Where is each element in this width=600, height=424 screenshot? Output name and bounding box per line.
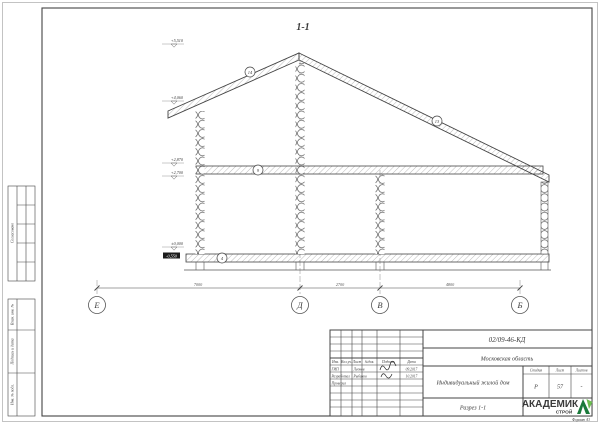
dimension-value: 7000 bbox=[194, 282, 203, 287]
stamp-cell-label: Взам. инв. № bbox=[11, 304, 15, 325]
project-name: Индивидуальный жилой дом bbox=[436, 380, 510, 387]
stamp-cell-label: Подпись и дата bbox=[11, 338, 15, 365]
log-wall-right bbox=[376, 174, 385, 254]
svg-text:14: 14 bbox=[248, 70, 253, 75]
svg-text:+2,870: +2,870 bbox=[171, 157, 184, 163]
tb-header-doc: №док. bbox=[364, 360, 375, 364]
tb-row-role: Разработал bbox=[331, 374, 351, 378]
svg-text:+5,510: +5,510 bbox=[171, 38, 184, 44]
svg-text:±0,000: ±0,000 bbox=[171, 241, 184, 247]
svg-text:Б: Б bbox=[516, 300, 522, 310]
svg-text:+2,700: +2,700 bbox=[171, 170, 184, 176]
format-note: Формат А3 bbox=[572, 418, 590, 422]
sheet-value: 57 bbox=[557, 385, 564, 391]
stage-label: Стадия bbox=[530, 369, 542, 373]
elevation-mark: +2,700 bbox=[162, 170, 184, 179]
axis-bubble-e: Е bbox=[89, 297, 106, 314]
svg-text:13: 13 bbox=[435, 119, 440, 124]
section-title: 1-1 bbox=[296, 22, 309, 33]
roof-left-slope bbox=[168, 53, 299, 118]
detail-marker: 9 bbox=[253, 165, 263, 175]
sheets-label: Листов bbox=[575, 369, 588, 373]
dimension-value: 2700 bbox=[336, 282, 345, 287]
end-post bbox=[541, 182, 548, 254]
detail-markers: 14 13 9 4 bbox=[217, 67, 442, 263]
log-wall-left bbox=[196, 111, 205, 254]
log-wall-middle bbox=[296, 63, 305, 254]
tb-row-name: Рыбаков bbox=[353, 374, 368, 378]
doc-number: 02/09-46-КД bbox=[489, 336, 526, 344]
section-drawing-canvas: Согласовано Взам. инв. № Подпись и дата … bbox=[0, 0, 600, 424]
foundation-lines bbox=[184, 262, 551, 270]
side-stamp-column: Согласовано Взам. инв. № Подпись и дата … bbox=[8, 186, 35, 416]
roof-right-slope bbox=[299, 53, 549, 182]
tb-row-name: Леонов bbox=[353, 367, 365, 371]
tb-row-date: 09.2017 bbox=[406, 367, 418, 371]
region-name: Московская область bbox=[480, 356, 534, 363]
tb-header-list: Лист bbox=[352, 360, 362, 364]
axis-bubble-d: Д bbox=[292, 297, 309, 314]
tb-header-koluch: Кол.уч. bbox=[340, 360, 352, 364]
dimension-value: 4800 bbox=[446, 282, 455, 287]
sheet-label: Лист bbox=[555, 369, 565, 373]
tb-row-role: Проверил bbox=[331, 381, 347, 385]
dimension-line: 7000 2700 4800 bbox=[95, 282, 523, 291]
axis-bubble-b: Б bbox=[512, 297, 529, 314]
floor-beam bbox=[186, 254, 549, 262]
sheets-value: - bbox=[581, 385, 583, 391]
title-block: Изм. Кол.уч. Лист №док. Подпись Дата ГИП… bbox=[330, 330, 593, 416]
svg-text:+4,060: +4,060 bbox=[171, 95, 184, 101]
axis-bubbles: Е Д В Б bbox=[89, 297, 529, 314]
detail-marker: 4 bbox=[217, 253, 227, 263]
elevation-mark: +4,060 bbox=[162, 95, 184, 104]
svg-text:Д: Д bbox=[296, 300, 303, 310]
ceiling-beam bbox=[196, 166, 543, 174]
elevation-mark-negative: -0,550 bbox=[163, 253, 180, 260]
tb-row-role: ГИП bbox=[331, 367, 340, 371]
detail-marker: 14 bbox=[245, 67, 255, 77]
tb-header-date: Дата bbox=[406, 360, 416, 364]
stamp-cell-label: Инв. № подл. bbox=[11, 384, 15, 406]
detail-marker: 13 bbox=[432, 116, 442, 126]
tb-row-date: 10.2017 bbox=[406, 374, 418, 378]
svg-text:Е: Е bbox=[93, 300, 100, 310]
axis-bubble-v: В bbox=[372, 297, 389, 314]
drawing-name: Разрез 1-1 bbox=[459, 406, 486, 412]
elevation-marks: +5,510 +4,060 +2,870 +2,700 ±0,000 -0,55… bbox=[162, 38, 184, 259]
elevation-mark: +2,870 bbox=[162, 157, 184, 166]
tb-header-izm: Изм. bbox=[331, 360, 339, 364]
elevation-mark: ±0,000 bbox=[162, 241, 184, 250]
building-section bbox=[168, 53, 551, 270]
stage-value: Р bbox=[533, 385, 538, 391]
svg-text:В: В bbox=[377, 300, 382, 310]
logo-text-line1: АКАДЕМИК bbox=[522, 399, 579, 410]
elevation-mark: +5,510 bbox=[162, 38, 184, 47]
drawing-sheet: Согласовано Взам. инв. № Подпись и дата … bbox=[0, 0, 600, 424]
approved-stamp-label: Согласовано bbox=[11, 223, 15, 243]
